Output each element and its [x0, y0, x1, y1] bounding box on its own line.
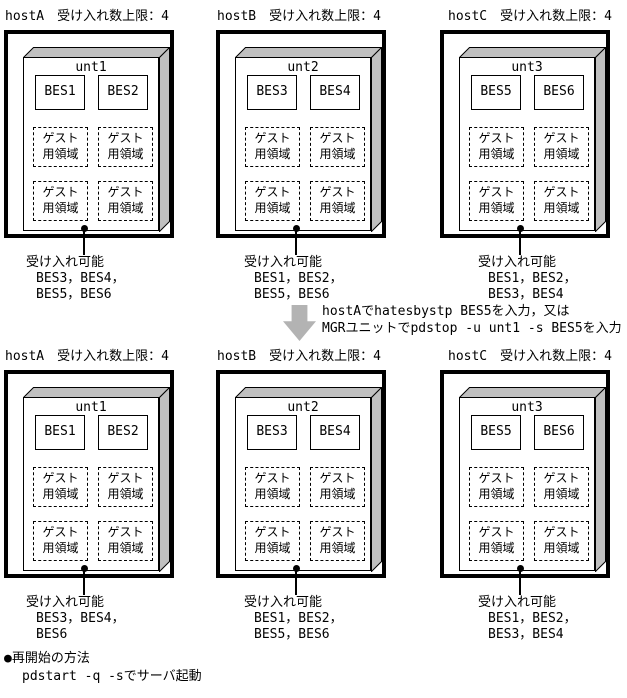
connector-line [295, 227, 297, 255]
host-outer-box: unt3 BES5 BES6 ゲスト用領域 ゲスト用領域 ゲスト用領域 ゲスト用… [440, 30, 610, 238]
guest-area-label: 用領域 [34, 486, 87, 502]
guest-area-label: 用領域 [99, 486, 152, 502]
accept-title: 受け入れ可能 [26, 255, 125, 271]
accept-line: BES3，BES4 [488, 287, 577, 303]
unit-name-label: unt1 [24, 400, 158, 415]
connector-line [519, 567, 521, 595]
host-name: hostB [217, 9, 256, 24]
host-block-c-before: hostC受け入れ数上限：4 unt3 BES5 BES6 ゲスト用領域 ゲスト… [440, 5, 627, 315]
host-name: hostC [448, 349, 487, 364]
host-name: hostA [5, 349, 44, 364]
guest-area-label: 用領域 [470, 540, 523, 556]
guest-area-label: ゲスト [246, 184, 299, 200]
guest-area-label: 用領域 [311, 200, 364, 216]
unit-face: unt1 BES1 BES2 ゲスト用領域 ゲスト用領域 ゲスト用領域 ゲスト用… [23, 57, 159, 231]
accept-line: BES1，BES2， [254, 271, 343, 287]
bes-box: BES5 [471, 75, 521, 110]
bes-box: BES3 [247, 415, 297, 450]
guest-area-box: ゲスト用領域 [534, 127, 589, 167]
bes-box: BES2 [98, 415, 148, 450]
guest-area-label: 用領域 [470, 200, 523, 216]
guest-area-label: ゲスト [99, 470, 152, 486]
guest-area-label: 用領域 [311, 540, 364, 556]
accept-list: 受け入れ可能 BES1，BES2， BES3，BES4 [478, 595, 577, 643]
connector-dot [293, 225, 300, 232]
footnote-command: pdstart -q -sでサーバ起動 [22, 668, 202, 686]
unit-name-label: unt3 [460, 400, 594, 415]
guest-area-label: 用領域 [535, 146, 588, 162]
guest-area-box: ゲスト用領域 [245, 127, 300, 167]
host-block-a-before: hostA受け入れ数上限：4 unt1 BES1 BES2 ゲスト用領域 ゲスト… [4, 5, 209, 315]
guest-area-box: ゲスト用領域 [98, 181, 153, 221]
guest-area-box: ゲスト用領域 [245, 181, 300, 221]
bes-box: BES4 [310, 415, 360, 450]
guest-area-box: ゲスト用領域 [245, 467, 300, 507]
guest-area-label: ゲスト [246, 130, 299, 146]
host-name: hostA [5, 9, 44, 24]
guest-area-box: ゲスト用領域 [534, 467, 589, 507]
guest-area-label: 用領域 [246, 146, 299, 162]
host-limit: 受け入れ数上限：4 [269, 349, 381, 364]
connector-line [83, 567, 85, 595]
host-label: hostB受け入れ数上限：4 [217, 345, 381, 364]
accept-list: 受け入れ可能 BES1，BES2， BES5，BES6 [244, 255, 343, 303]
connector-dot [293, 565, 300, 572]
guest-area-label: 用領域 [246, 486, 299, 502]
host-block-c-after: hostC受け入れ数上限：4 unt3 BES5 BES6 ゲスト用領域 ゲスト… [440, 345, 627, 655]
connector-dot [81, 225, 88, 232]
guest-area-label: 用領域 [99, 200, 152, 216]
bes-box: BES4 [310, 75, 360, 110]
host-limit: 受け入れ数上限：4 [500, 9, 612, 24]
guest-area-label: 用領域 [246, 540, 299, 556]
guest-area-box: ゲスト用領域 [98, 521, 153, 561]
guest-area-box: ゲスト用領域 [469, 181, 524, 221]
unit-face: unt3 BES5 BES6 ゲスト用領域 ゲスト用領域 ゲスト用領域 ゲスト用… [459, 57, 595, 231]
guest-area-label: 用領域 [535, 200, 588, 216]
guest-area-box: ゲスト用領域 [469, 127, 524, 167]
bes-box: BES1 [35, 75, 85, 110]
unit-face: unt1 BES1 BES2 ゲスト用領域 ゲスト用領域 ゲスト用領域 ゲスト用… [23, 397, 159, 571]
accept-line: BES1，BES2， [488, 271, 577, 287]
guest-area-label: ゲスト [311, 130, 364, 146]
transition-line: hostAでhatesbystp BES5を入力，又は [322, 303, 622, 320]
guest-area-label: ゲスト [535, 184, 588, 200]
guest-area-label: 用領域 [311, 486, 364, 502]
guest-area-label: 用領域 [535, 486, 588, 502]
accept-list: 受け入れ可能 BES1，BES2， BES3，BES4 [478, 255, 577, 303]
host-outer-box: unt1 BES1 BES2 ゲスト用領域 ゲスト用領域 ゲスト用領域 ゲスト用… [4, 30, 174, 238]
guest-area-label: 用領域 [34, 540, 87, 556]
guest-area-label: ゲスト [246, 470, 299, 486]
guest-area-box: ゲスト用領域 [534, 181, 589, 221]
host-outer-box: unt1 BES1 BES2 ゲスト用領域 ゲスト用領域 ゲスト用領域 ゲスト用… [4, 370, 174, 578]
unit-name-label: unt3 [460, 60, 594, 75]
accept-list: 受け入れ可能 BES3，BES4， BES6 [26, 595, 125, 643]
guest-area-label: ゲスト [470, 470, 523, 486]
connector-dot [517, 225, 524, 232]
guest-area-label: 用領域 [99, 146, 152, 162]
guest-area-box: ゲスト用領域 [98, 127, 153, 167]
accept-title: 受け入れ可能 [478, 595, 577, 611]
accept-list: 受け入れ可能 BES3，BES4， BES5，BES6 [26, 255, 125, 303]
bes-box: BES6 [534, 415, 584, 450]
unit-3d-box: unt2 BES3 BES4 ゲスト用領域 ゲスト用領域 ゲスト用領域 ゲスト用… [235, 387, 382, 572]
unit-face: unt3 BES5 BES6 ゲスト用領域 ゲスト用領域 ゲスト用領域 ゲスト用… [459, 397, 595, 571]
transition-note: hostAでhatesbystp BES5を入力，又は MGRユニットでpdst… [283, 303, 622, 341]
guest-area-label: ゲスト [34, 184, 87, 200]
bes-box: BES3 [247, 75, 297, 110]
unit-name-label: unt2 [236, 60, 370, 75]
host-limit: 受け入れ数上限：4 [500, 349, 612, 364]
guest-area-label: ゲスト [470, 130, 523, 146]
accept-line: BES3，BES4， [36, 611, 125, 627]
guest-area-label: 用領域 [470, 146, 523, 162]
unit-3d-box: unt1 BES1 BES2 ゲスト用領域 ゲスト用領域 ゲスト用領域 ゲスト用… [23, 47, 170, 232]
footnote: ●再開始の方法 pdstart -q -sでサーバ起動 [4, 650, 202, 686]
unit-face: unt2 BES3 BES4 ゲスト用領域 ゲスト用領域 ゲスト用領域 ゲスト用… [235, 57, 371, 231]
host-label: hostC受け入れ数上限：4 [448, 5, 612, 24]
transition-line: MGRユニットでpdstop -u unt1 -s BES5を入力 [322, 320, 622, 337]
guest-area-box: ゲスト用領域 [33, 521, 88, 561]
connector-line [519, 227, 521, 255]
unit-name-label: unt2 [236, 400, 370, 415]
bes-box: BES1 [35, 415, 85, 450]
guest-area-label: ゲスト [34, 470, 87, 486]
host-limit: 受け入れ数上限：4 [57, 9, 169, 24]
host-label: hostB受け入れ数上限：4 [217, 5, 381, 24]
guest-area-label: ゲスト [246, 524, 299, 540]
guest-area-box: ゲスト用領域 [469, 521, 524, 561]
host-label: hostA受け入れ数上限：4 [5, 345, 169, 364]
guest-area-label: ゲスト [311, 470, 364, 486]
guest-area-box: ゲスト用領域 [310, 521, 365, 561]
guest-area-box: ゲスト用領域 [534, 521, 589, 561]
guest-area-label: 用領域 [99, 540, 152, 556]
guest-area-label: 用領域 [34, 200, 87, 216]
guest-area-label: 用領域 [470, 486, 523, 502]
connector-dot [81, 565, 88, 572]
unit-face: unt2 BES3 BES4 ゲスト用領域 ゲスト用領域 ゲスト用領域 ゲスト用… [235, 397, 371, 571]
connector-line [83, 227, 85, 255]
host-outer-box: unt3 BES5 BES6 ゲスト用領域 ゲスト用領域 ゲスト用領域 ゲスト用… [440, 370, 610, 578]
guest-area-label: ゲスト [34, 130, 87, 146]
guest-area-label: 用領域 [535, 540, 588, 556]
guest-area-label: ゲスト [34, 524, 87, 540]
guest-area-label: ゲスト [99, 130, 152, 146]
guest-area-box: ゲスト用領域 [245, 521, 300, 561]
host-outer-box: unt2 BES3 BES4 ゲスト用領域 ゲスト用領域 ゲスト用領域 ゲスト用… [216, 370, 386, 578]
accept-line: BES3，BES4， [36, 271, 125, 287]
accept-title: 受け入れ可能 [244, 255, 343, 271]
bes-box: BES2 [98, 75, 148, 110]
host-name: hostC [448, 9, 487, 24]
guest-area-label: ゲスト [311, 524, 364, 540]
guest-area-box: ゲスト用領域 [310, 127, 365, 167]
down-arrow-icon [283, 305, 316, 341]
guest-area-box: ゲスト用領域 [98, 467, 153, 507]
bes-box: BES5 [471, 415, 521, 450]
accept-line: BES1，BES2， [488, 611, 577, 627]
guest-area-box: ゲスト用領域 [469, 467, 524, 507]
accept-list: 受け入れ可能 BES1，BES2， BES5，BES6 [244, 595, 343, 643]
unit-3d-box: unt3 BES5 BES6 ゲスト用領域 ゲスト用領域 ゲスト用領域 ゲスト用… [459, 47, 606, 232]
guest-area-label: ゲスト [470, 524, 523, 540]
accept-line: BES5，BES6 [254, 627, 343, 643]
guest-area-label: 用領域 [34, 146, 87, 162]
unit-3d-box: unt1 BES1 BES2 ゲスト用領域 ゲスト用領域 ゲスト用領域 ゲスト用… [23, 387, 170, 572]
unit-3d-box: unt3 BES5 BES6 ゲスト用領域 ゲスト用領域 ゲスト用領域 ゲスト用… [459, 387, 606, 572]
bes-box: BES6 [534, 75, 584, 110]
host-block-a-after: hostA受け入れ数上限：4 unt1 BES1 BES2 ゲスト用領域 ゲスト… [4, 345, 209, 655]
host-block-b-after: hostB受け入れ数上限：4 unt2 BES3 BES4 ゲスト用領域 ゲスト… [216, 345, 421, 655]
host-label: hostA受け入れ数上限：4 [5, 5, 169, 24]
guest-area-box: ゲスト用領域 [310, 467, 365, 507]
accept-line: BES5，BES6 [254, 287, 343, 303]
guest-area-label: ゲスト [535, 470, 588, 486]
transition-text: hostAでhatesbystp BES5を入力，又は MGRユニットでpdst… [322, 303, 622, 337]
guest-area-label: ゲスト [470, 184, 523, 200]
unit-3d-box: unt2 BES3 BES4 ゲスト用領域 ゲスト用領域 ゲスト用領域 ゲスト用… [235, 47, 382, 232]
accept-line: BES3，BES4 [488, 627, 577, 643]
guest-area-label: 用領域 [311, 146, 364, 162]
guest-area-label: ゲスト [99, 524, 152, 540]
guest-area-label: ゲスト [535, 524, 588, 540]
guest-area-label: ゲスト [99, 184, 152, 200]
accept-line: BES6 [36, 627, 125, 643]
host-name: hostB [217, 349, 256, 364]
host-limit: 受け入れ数上限：4 [269, 9, 381, 24]
accept-title: 受け入れ可能 [244, 595, 343, 611]
guest-area-label: ゲスト [535, 130, 588, 146]
accept-line: BES1，BES2， [254, 611, 343, 627]
host-limit: 受け入れ数上限：4 [57, 349, 169, 364]
host-outer-box: unt2 BES3 BES4 ゲスト用領域 ゲスト用領域 ゲスト用領域 ゲスト用… [216, 30, 386, 238]
guest-area-box: ゲスト用領域 [310, 181, 365, 221]
accept-line: BES5，BES6 [36, 287, 125, 303]
connector-dot [517, 565, 524, 572]
host-label: hostC受け入れ数上限：4 [448, 345, 612, 364]
unit-name-label: unt1 [24, 60, 158, 75]
footnote-title: ●再開始の方法 [4, 650, 202, 668]
connector-line [295, 567, 297, 595]
guest-area-label: 用領域 [246, 200, 299, 216]
guest-area-box: ゲスト用領域 [33, 127, 88, 167]
host-block-b-before: hostB受け入れ数上限：4 unt2 BES3 BES4 ゲスト用領域 ゲスト… [216, 5, 421, 315]
guest-area-box: ゲスト用領域 [33, 467, 88, 507]
guest-area-box: ゲスト用領域 [33, 181, 88, 221]
accept-title: 受け入れ可能 [26, 595, 125, 611]
guest-area-label: ゲスト [311, 184, 364, 200]
accept-title: 受け入れ可能 [478, 255, 577, 271]
